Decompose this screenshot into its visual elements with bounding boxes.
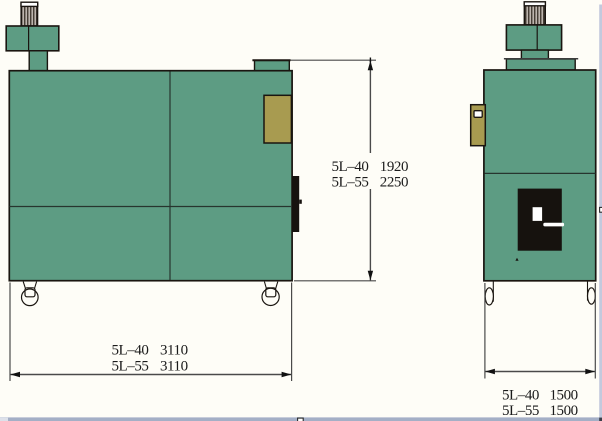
svg-text:5L–55: 5L–55 xyxy=(112,359,149,375)
svg-text:5L–40: 5L–40 xyxy=(502,388,539,404)
svg-text:1500: 1500 xyxy=(550,403,578,419)
svg-text:5L–40: 5L–40 xyxy=(112,343,149,359)
svg-text:5L–40: 5L–40 xyxy=(332,159,369,175)
svg-text:5L–55: 5L–55 xyxy=(332,174,369,190)
svg-text:1500: 1500 xyxy=(550,388,578,404)
svg-text:1920: 1920 xyxy=(380,159,408,175)
svg-text:5L–55: 5L–55 xyxy=(502,403,539,419)
svg-text:3110: 3110 xyxy=(160,359,188,375)
svg-text:3110: 3110 xyxy=(160,343,188,359)
svg-text:2250: 2250 xyxy=(380,174,408,190)
